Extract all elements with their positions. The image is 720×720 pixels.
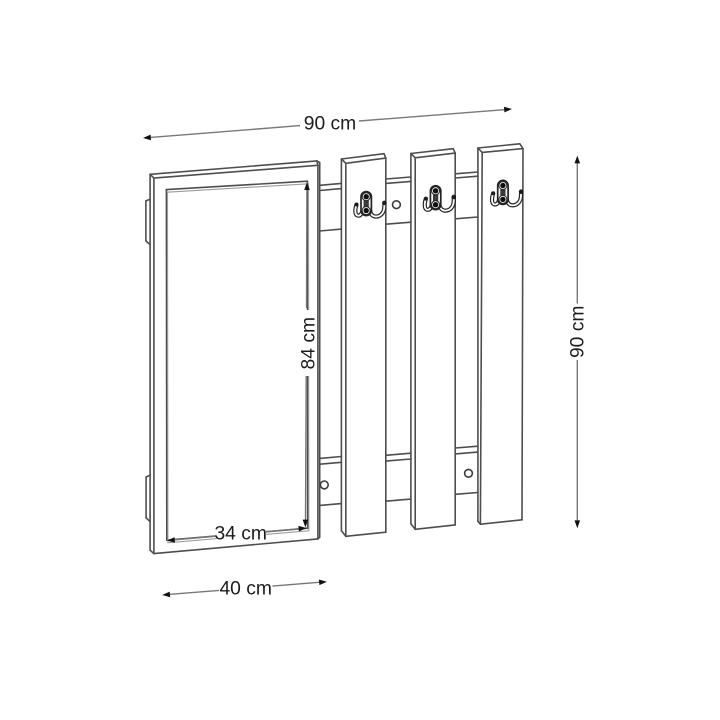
svg-text:90 cm: 90 cm	[568, 306, 589, 359]
svg-text:84 cm: 84 cm	[298, 317, 319, 370]
svg-text:90 cm: 90 cm	[304, 114, 357, 135]
svg-text:40 cm: 40 cm	[219, 578, 272, 599]
svg-text:34 cm: 34 cm	[214, 523, 267, 544]
